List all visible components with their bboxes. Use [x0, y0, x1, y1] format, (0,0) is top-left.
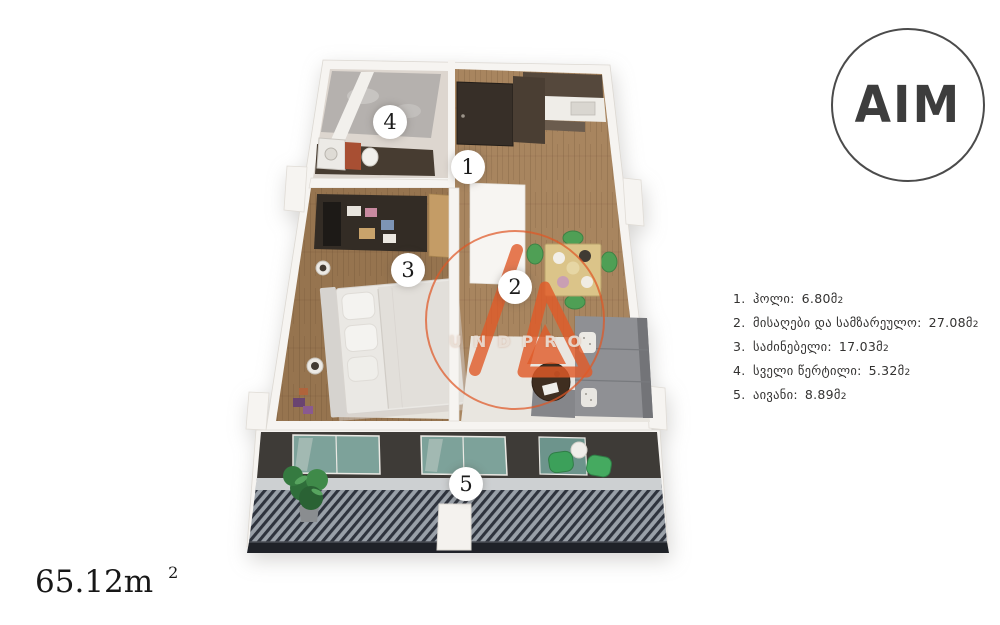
legend-room-name: ჰოლი: [753, 291, 795, 306]
hall [457, 82, 513, 146]
room-number: 1 [461, 155, 474, 179]
balcony-pillar [437, 504, 471, 550]
legend-room-area: 27.08მ [929, 315, 973, 330]
legend-room-area: 8.89მ [805, 387, 841, 402]
page: UNDPRO 1 2 3 4 5 AIM 1. ჰოლი: 6.80მ2 2. … [0, 0, 1000, 625]
room-number: 5 [459, 472, 472, 496]
bath-cabinet [345, 142, 361, 170]
company-logo-text: AIM [855, 75, 962, 134]
legend-number: 3. [733, 339, 753, 354]
wall-divider [449, 188, 459, 421]
toilet [362, 148, 378, 166]
legend-room-name: აივანი: [753, 387, 798, 402]
bed [320, 276, 469, 422]
legend-room-name: მისაღები და სამზარეულო: [753, 315, 922, 330]
legend-item: 3. საძინებელი: 17.03მ2 [733, 339, 995, 363]
legend-number: 5. [733, 387, 753, 402]
legend-area-sup: 2 [838, 296, 844, 306]
legend-area-sup: 2 [883, 344, 889, 354]
total-area: 65.12m2 [35, 563, 178, 600]
room-badge-bedroom: 3 [391, 253, 425, 287]
room-legend: 1. ჰოლი: 6.80მ2 2. მისაღები და სამზარეულ… [733, 291, 995, 411]
legend-area-sup: 2 [905, 368, 911, 378]
legend-item: 5. აივანი: 8.89მ2 [733, 387, 995, 411]
legend-room-area: 17.03მ [839, 339, 883, 354]
legend-number: 4. [733, 363, 753, 378]
total-area-sup: 2 [168, 563, 178, 582]
balcony-table [571, 442, 587, 458]
coffee-table [532, 363, 570, 401]
legend-item: 2. მისაღები და სამზარეულო: 27.08მ2 [733, 315, 995, 339]
legend-number: 1. [733, 291, 753, 306]
legend-number: 2. [733, 315, 753, 330]
room-badge-balcony: 5 [449, 467, 483, 501]
room-badge-hall: 1 [451, 150, 485, 184]
room-number: 4 [383, 110, 396, 134]
room-number: 2 [508, 275, 521, 299]
legend-room-area: 6.80მ [802, 291, 838, 306]
legend-room-name: საძინებელი: [753, 339, 832, 354]
kitchen-cabinet-column [513, 76, 545, 144]
legend-area-sup: 2 [841, 392, 847, 402]
company-logo: AIM [831, 28, 985, 182]
legend-room-area: 5.32მ [869, 363, 905, 378]
room-number: 3 [401, 258, 414, 282]
legend-room-name: სველი წერტილი: [753, 363, 862, 378]
legend-area-sup: 2 [973, 320, 979, 330]
kitchen-sink [571, 102, 595, 115]
room-badge-bathroom: 4 [373, 105, 407, 139]
legend-item: 1. ჰოლი: 6.80მ2 [733, 291, 995, 315]
room-badge-living: 2 [498, 270, 532, 304]
total-area-value: 65.12m [35, 564, 153, 600]
entry-door [457, 82, 513, 146]
legend-item: 4. სველი წერტილი: 5.32მ2 [733, 363, 995, 387]
